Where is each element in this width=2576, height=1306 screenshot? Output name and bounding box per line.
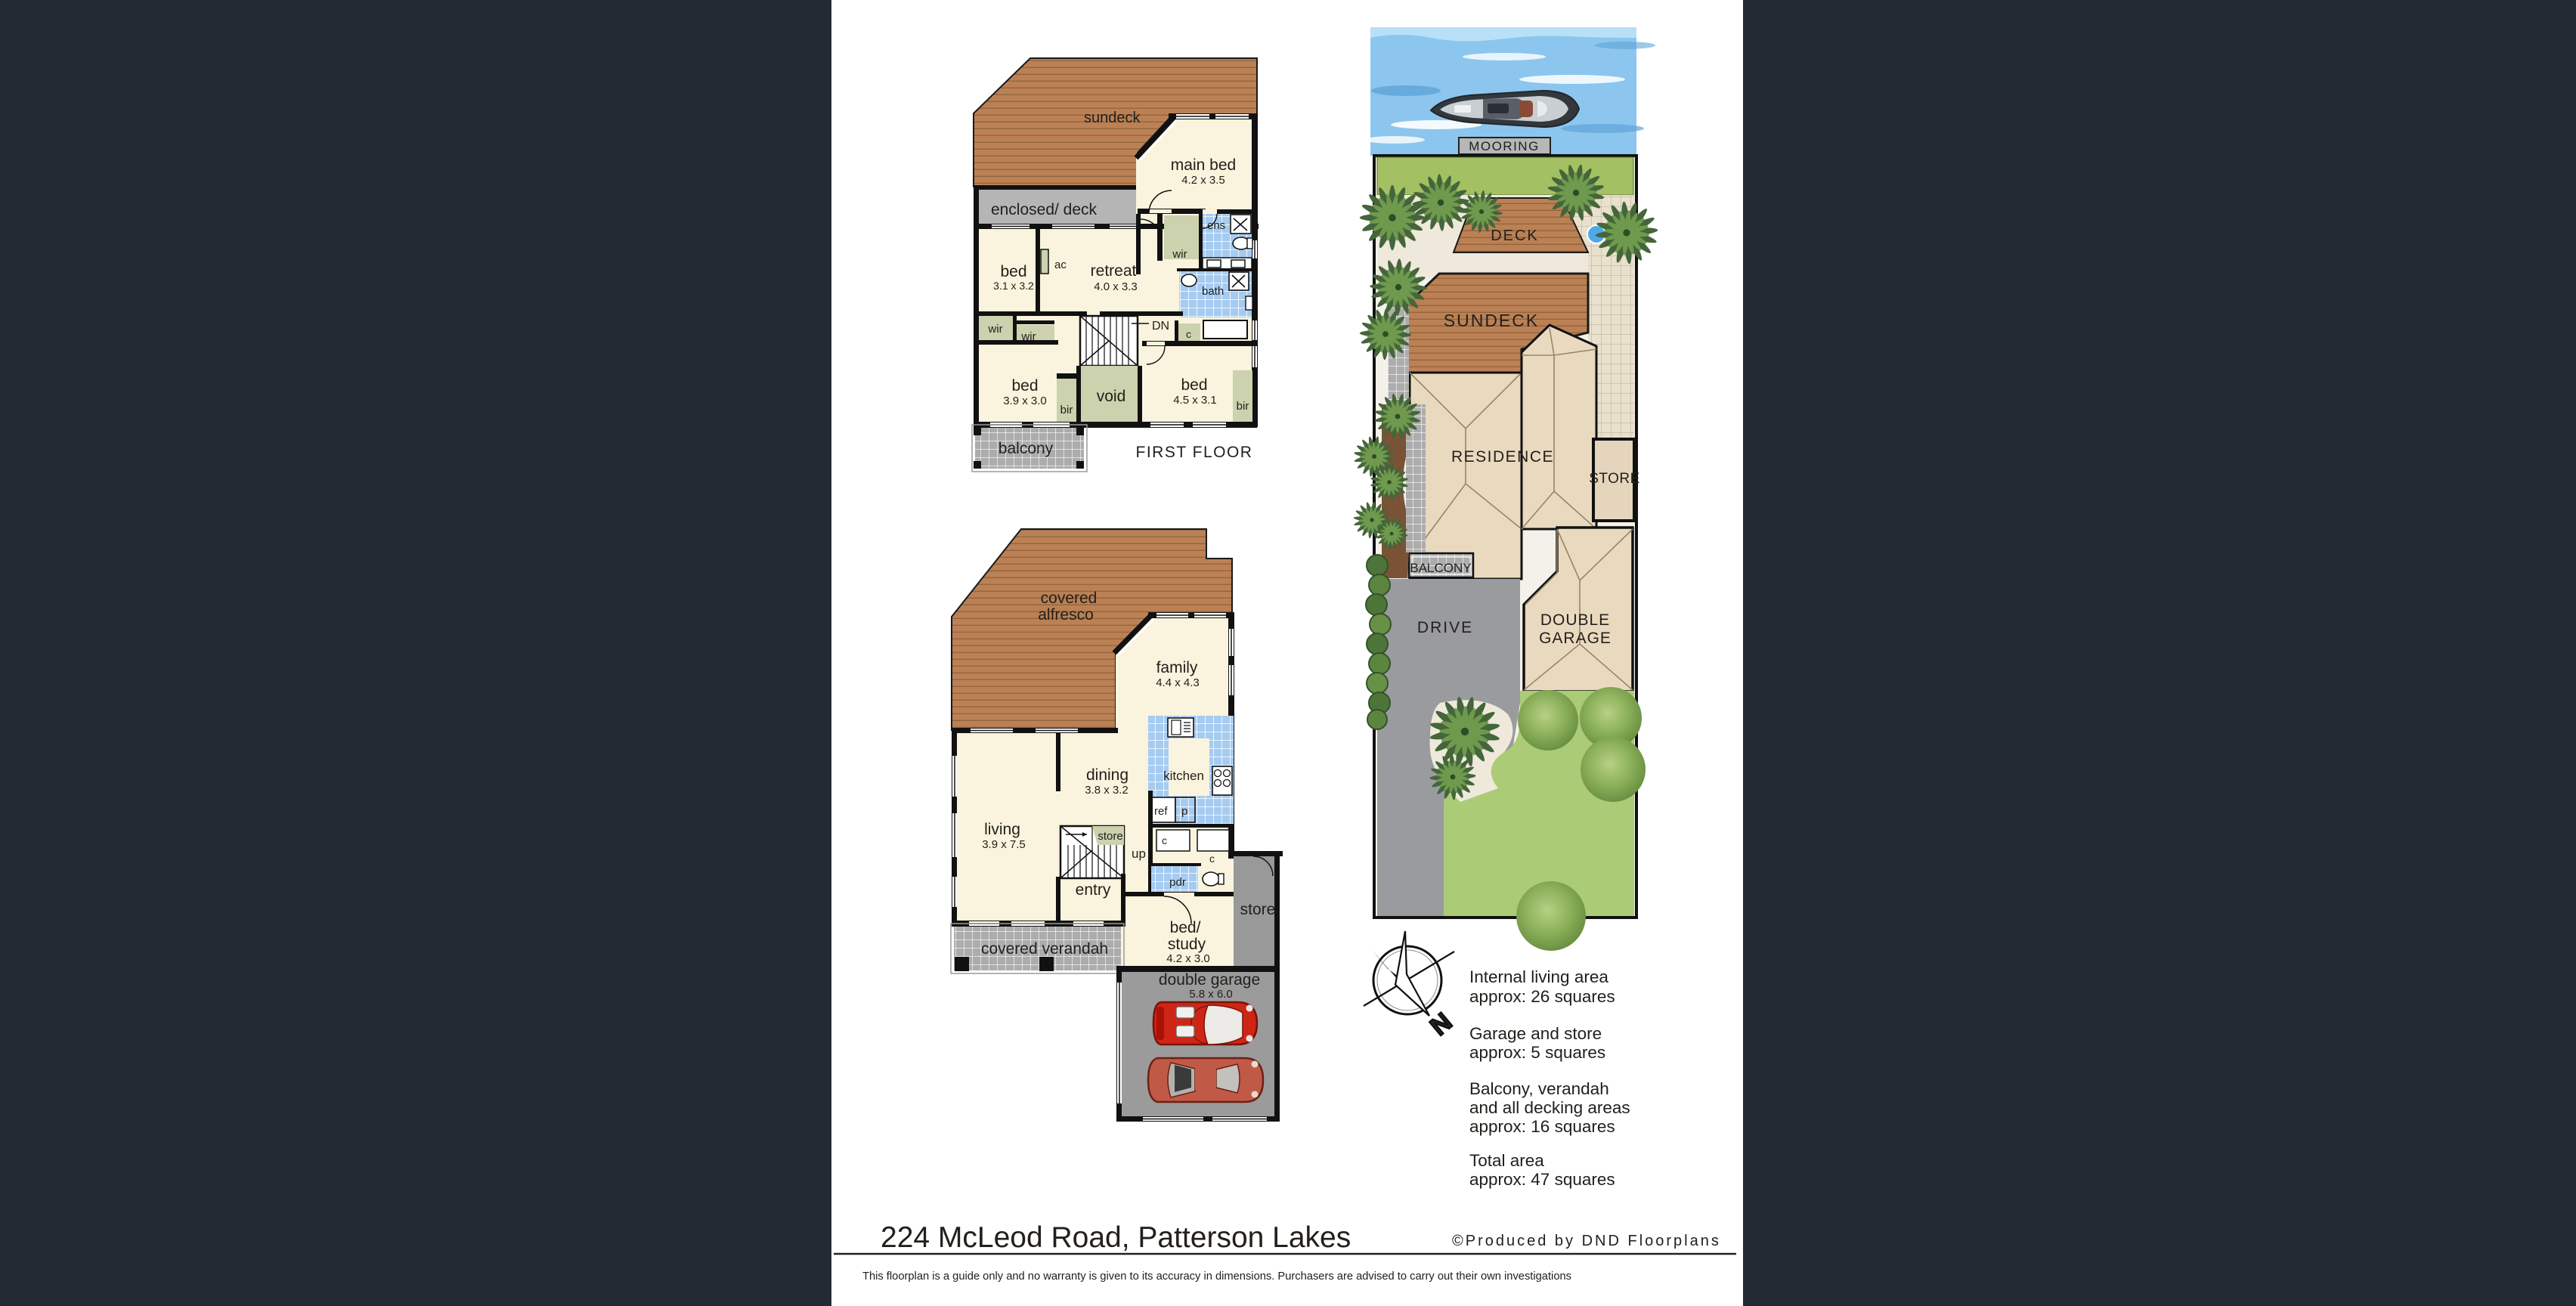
svg-text:MOORING: MOORING xyxy=(1469,139,1540,153)
svg-text:DECK: DECK xyxy=(1491,227,1539,244)
svg-text:c: c xyxy=(1186,328,1191,340)
svg-text:store: store xyxy=(1098,830,1122,843)
svg-text:4.5 x 3.1: 4.5 x 3.1 xyxy=(1173,394,1217,407)
svg-text:store: store xyxy=(1240,901,1276,918)
svg-text:RESIDENCE: RESIDENCE xyxy=(1451,448,1554,466)
svg-text:4.2 x 3.5: 4.2 x 3.5 xyxy=(1181,174,1225,187)
svg-text:enclosed/ deck: enclosed/ deck xyxy=(991,201,1098,218)
svg-text:up: up xyxy=(1132,846,1146,861)
svg-text:retreat: retreat xyxy=(1091,262,1137,280)
svg-text:GARAGE: GARAGE xyxy=(1539,630,1612,647)
svg-text:4.2 x 3.0: 4.2 x 3.0 xyxy=(1166,952,1210,965)
svg-text:wir: wir xyxy=(1020,330,1036,343)
svg-text:c: c xyxy=(1209,853,1215,865)
svg-text:approx: 16 squares: approx: 16 squares xyxy=(1469,1117,1615,1136)
svg-text:covered: covered xyxy=(1041,590,1098,607)
svg-text:dining: dining xyxy=(1086,766,1129,784)
svg-text:4.4 x 4.3: 4.4 x 4.3 xyxy=(1156,676,1200,689)
svg-text:void: void xyxy=(1097,388,1126,405)
svg-text:5.8 x 6.0: 5.8 x 6.0 xyxy=(1189,988,1233,1001)
svg-text:FIRST FLOOR: FIRST FLOOR xyxy=(1136,444,1253,461)
svg-text:Internal living area: Internal living area xyxy=(1469,967,1608,986)
svg-text:entry: entry xyxy=(1076,881,1111,899)
svg-text:family: family xyxy=(1156,659,1198,676)
svg-text:4.0 x 3.3: 4.0 x 3.3 xyxy=(1094,280,1138,293)
svg-text:©Produced by DND Floorplans: ©Produced by DND Floorplans xyxy=(1452,1233,1721,1249)
svg-text:and all decking areas: and all decking areas xyxy=(1469,1098,1630,1117)
svg-text:STORE: STORE xyxy=(1589,471,1640,487)
svg-text:bed/: bed/ xyxy=(1170,919,1201,936)
svg-text:Garage and store: Garage and store xyxy=(1469,1024,1602,1043)
svg-text:DRIVE: DRIVE xyxy=(1417,619,1473,636)
svg-text:3.9 x 7.5: 3.9 x 7.5 xyxy=(982,838,1026,851)
svg-text:approx: 5 squares: approx: 5 squares xyxy=(1469,1043,1605,1062)
svg-text:kitchen: kitchen xyxy=(1163,769,1204,783)
svg-text:alfresco: alfresco xyxy=(1038,606,1094,624)
svg-text:BALCONY: BALCONY xyxy=(1410,561,1471,575)
svg-text:wir: wir xyxy=(1172,248,1187,261)
svg-text:p: p xyxy=(1181,805,1187,818)
svg-text:approx: 47 squares: approx: 47 squares xyxy=(1469,1170,1615,1189)
svg-text:3.8 x 3.2: 3.8 x 3.2 xyxy=(1085,784,1129,797)
svg-text:sundeck: sundeck xyxy=(1084,110,1141,126)
svg-text:main bed: main bed xyxy=(1171,156,1236,174)
svg-text:study: study xyxy=(1168,936,1206,953)
svg-text:balcony: balcony xyxy=(999,440,1054,457)
svg-text:224 McLeod Road, Patterson Lak: 224 McLeod Road, Patterson Lakes xyxy=(881,1221,1351,1254)
svg-text:bed: bed xyxy=(1181,376,1207,394)
svg-text:This floorplan is a guide only: This floorplan is a guide only and no wa… xyxy=(862,1270,1571,1283)
svg-text:double garage: double garage xyxy=(1159,971,1260,989)
svg-text:bir: bir xyxy=(1237,400,1249,413)
svg-text:living: living xyxy=(984,821,1020,838)
svg-text:Total area: Total area xyxy=(1469,1151,1544,1170)
svg-text:pdr: pdr xyxy=(1169,876,1186,889)
svg-text:approx: 26 squares: approx: 26 squares xyxy=(1469,987,1615,1006)
svg-text:bir: bir xyxy=(1060,404,1073,416)
svg-text:c: c xyxy=(1162,834,1167,846)
svg-text:SUNDECK: SUNDECK xyxy=(1444,311,1539,330)
svg-text:DOUBLE: DOUBLE xyxy=(1540,611,1610,629)
svg-text:wir: wir xyxy=(987,323,1002,336)
svg-text:bed: bed xyxy=(1011,377,1038,395)
svg-text:bath: bath xyxy=(1202,285,1224,298)
svg-text:3.9 x 3.0: 3.9 x 3.0 xyxy=(1003,395,1047,407)
svg-text:3.1 x 3.2: 3.1 x 3.2 xyxy=(993,280,1034,292)
svg-text:ref: ref xyxy=(1154,805,1168,818)
svg-text:Balcony, verandah: Balcony, verandah xyxy=(1469,1079,1609,1098)
svg-text:covered verandah: covered verandah xyxy=(981,940,1108,958)
svg-text:ens: ens xyxy=(1207,219,1225,232)
svg-text:bed: bed xyxy=(1000,263,1026,280)
svg-text:ac: ac xyxy=(1054,258,1067,271)
svg-text:DN: DN xyxy=(1152,320,1169,333)
